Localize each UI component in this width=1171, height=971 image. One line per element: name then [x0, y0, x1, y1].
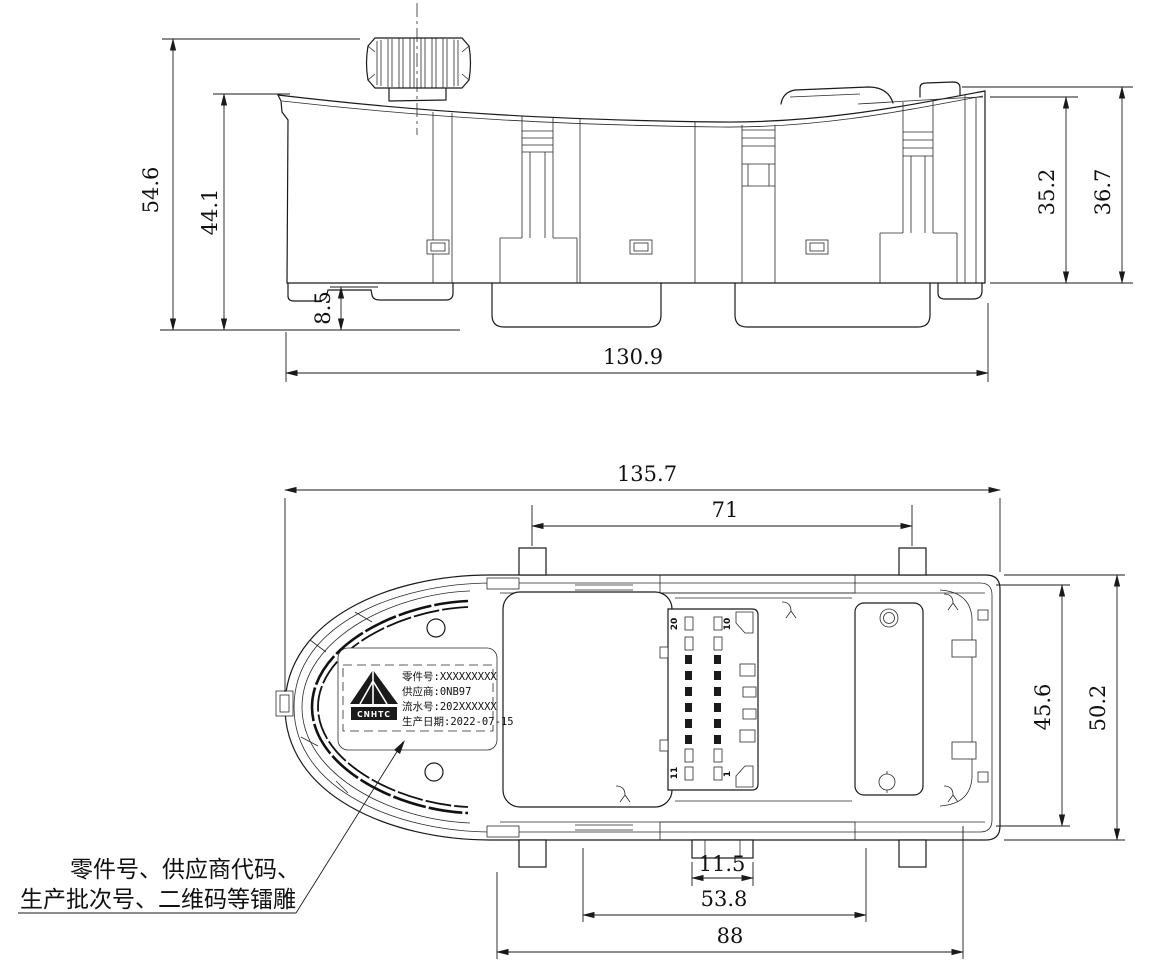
- dim-total-height: 54.6: [139, 39, 460, 330]
- rear-bump: [920, 82, 960, 97]
- dim-label-88: 88: [717, 924, 744, 948]
- switch-block: [503, 592, 672, 807]
- dim-label-50-2: 50.2: [1086, 685, 1110, 732]
- dim-label-8-5: 8.5: [311, 291, 335, 324]
- engineering-drawing-page: 54.6 44.1 8.5 130.9 35.2 36.7: [0, 0, 1171, 971]
- dim-label-45-6: 45.6: [1031, 684, 1055, 731]
- dim-label-135-7: 135.7: [617, 462, 677, 486]
- dim-label-35-2: 35.2: [1035, 169, 1059, 216]
- dim-tab-spacing: 71: [532, 498, 912, 546]
- right-interior: [940, 590, 988, 806]
- dim-label-11-5: 11.5: [699, 852, 746, 876]
- dim-foot-height: 8.5: [311, 287, 378, 330]
- dim-label-44-1: 44.1: [198, 189, 222, 236]
- panel-top-surface: [278, 91, 985, 122]
- laser-marking-callout: 零件号、供应商代码、 生产批次号、二维码等镭雕: [18, 740, 405, 913]
- dim-label-53-8: 53.8: [701, 887, 748, 911]
- internal-ribs: [433, 95, 965, 283]
- label-date: 生产日期:2022-07-15: [402, 715, 514, 728]
- pin-number-10: 10: [723, 618, 733, 631]
- callout-line-1: 零件号、供应商代码、: [70, 857, 300, 883]
- logo-text: CNHTC: [357, 710, 391, 719]
- dim-label-71: 71: [712, 498, 739, 522]
- dim-label-130-9: 130.9: [603, 345, 663, 369]
- rotary-knob: [367, 38, 471, 101]
- label-serial: 流水号:202XXXXXX: [402, 700, 497, 713]
- dim-inner-width: 45.6: [996, 585, 1070, 826]
- dim-overall-width-bottom: 50.2: [1004, 575, 1125, 840]
- cover-plate: [855, 603, 923, 795]
- dim-label-54-6: 54.6: [139, 167, 163, 214]
- pin-number-1: 1: [723, 771, 733, 777]
- clip-windows: [427, 240, 828, 254]
- pin-number-11: 11: [670, 767, 680, 780]
- drawing-canvas: 54.6 44.1 8.5 130.9 35.2 36.7: [0, 0, 1171, 971]
- label-part-number: 零件号:XXXXXXXXX: [402, 671, 497, 683]
- pin-number-20: 20: [670, 618, 680, 631]
- bottom-view: 20 10 11 1: [276, 462, 1125, 959]
- callout-leader: [296, 742, 403, 913]
- left-edge-notch: [276, 691, 293, 716]
- center-column: [742, 125, 775, 283]
- screw-boss-top: [427, 619, 445, 637]
- callout-line-2: 生产批次号、二维码等镭雕: [20, 887, 296, 913]
- label-supplier: 供应商:0NB97: [402, 685, 471, 698]
- dim-label-36-7: 36.7: [1091, 169, 1115, 216]
- snap-tower-left: [500, 116, 577, 283]
- dim-body-height: 44.1: [198, 94, 290, 330]
- mounting-feet: [288, 283, 982, 327]
- dim-overall-width: 130.9: [286, 303, 988, 382]
- side-view: 54.6 44.1 8.5 130.9 35.2 36.7: [139, 3, 1133, 382]
- connector: 20 10 11 1: [660, 598, 852, 801]
- knob-stem: [389, 88, 446, 101]
- rear-clip: [781, 87, 893, 104]
- dim-center-tab: 11.5: [692, 852, 753, 886]
- snap-tower-right: [880, 100, 957, 283]
- part-label: CNHTC 零件号:XXXXXXXXX 供应商:0NB97 流水号:202XXX…: [338, 648, 514, 750]
- screw-boss-bottom: [425, 763, 443, 781]
